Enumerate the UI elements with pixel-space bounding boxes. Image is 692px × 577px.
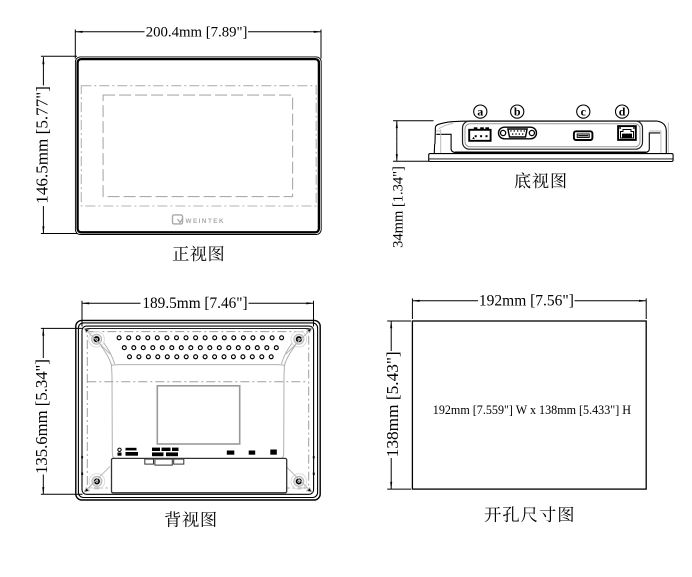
svg-text:34mm [1.34"]: 34mm [1.34"]	[390, 166, 406, 248]
svg-text:189.5mm [7.46"]: 189.5mm [7.46"]	[142, 295, 247, 312]
svg-text:c: c	[581, 105, 587, 119]
svg-text:d: d	[619, 105, 626, 119]
svg-text:135.6mm [5.34"]: 135.6mm [5.34"]	[32, 359, 51, 474]
svg-text:WEINTEK: WEINTEK	[186, 218, 226, 225]
svg-text:192mm [7.56"]: 192mm [7.56"]	[479, 293, 574, 310]
svg-text:200.4mm [7.89"]: 200.4mm [7.89"]	[146, 25, 248, 41]
svg-text:138mm [5.43"]: 138mm [5.43"]	[383, 351, 402, 457]
svg-text:192mm [7.559"] W x 138mm [5.43: 192mm [7.559"] W x 138mm [5.433"] H	[433, 403, 631, 417]
svg-text:a: a	[477, 105, 483, 119]
svg-text:b: b	[514, 105, 521, 119]
svg-text:146.5mm [5.77"]: 146.5mm [5.77"]	[33, 86, 52, 204]
